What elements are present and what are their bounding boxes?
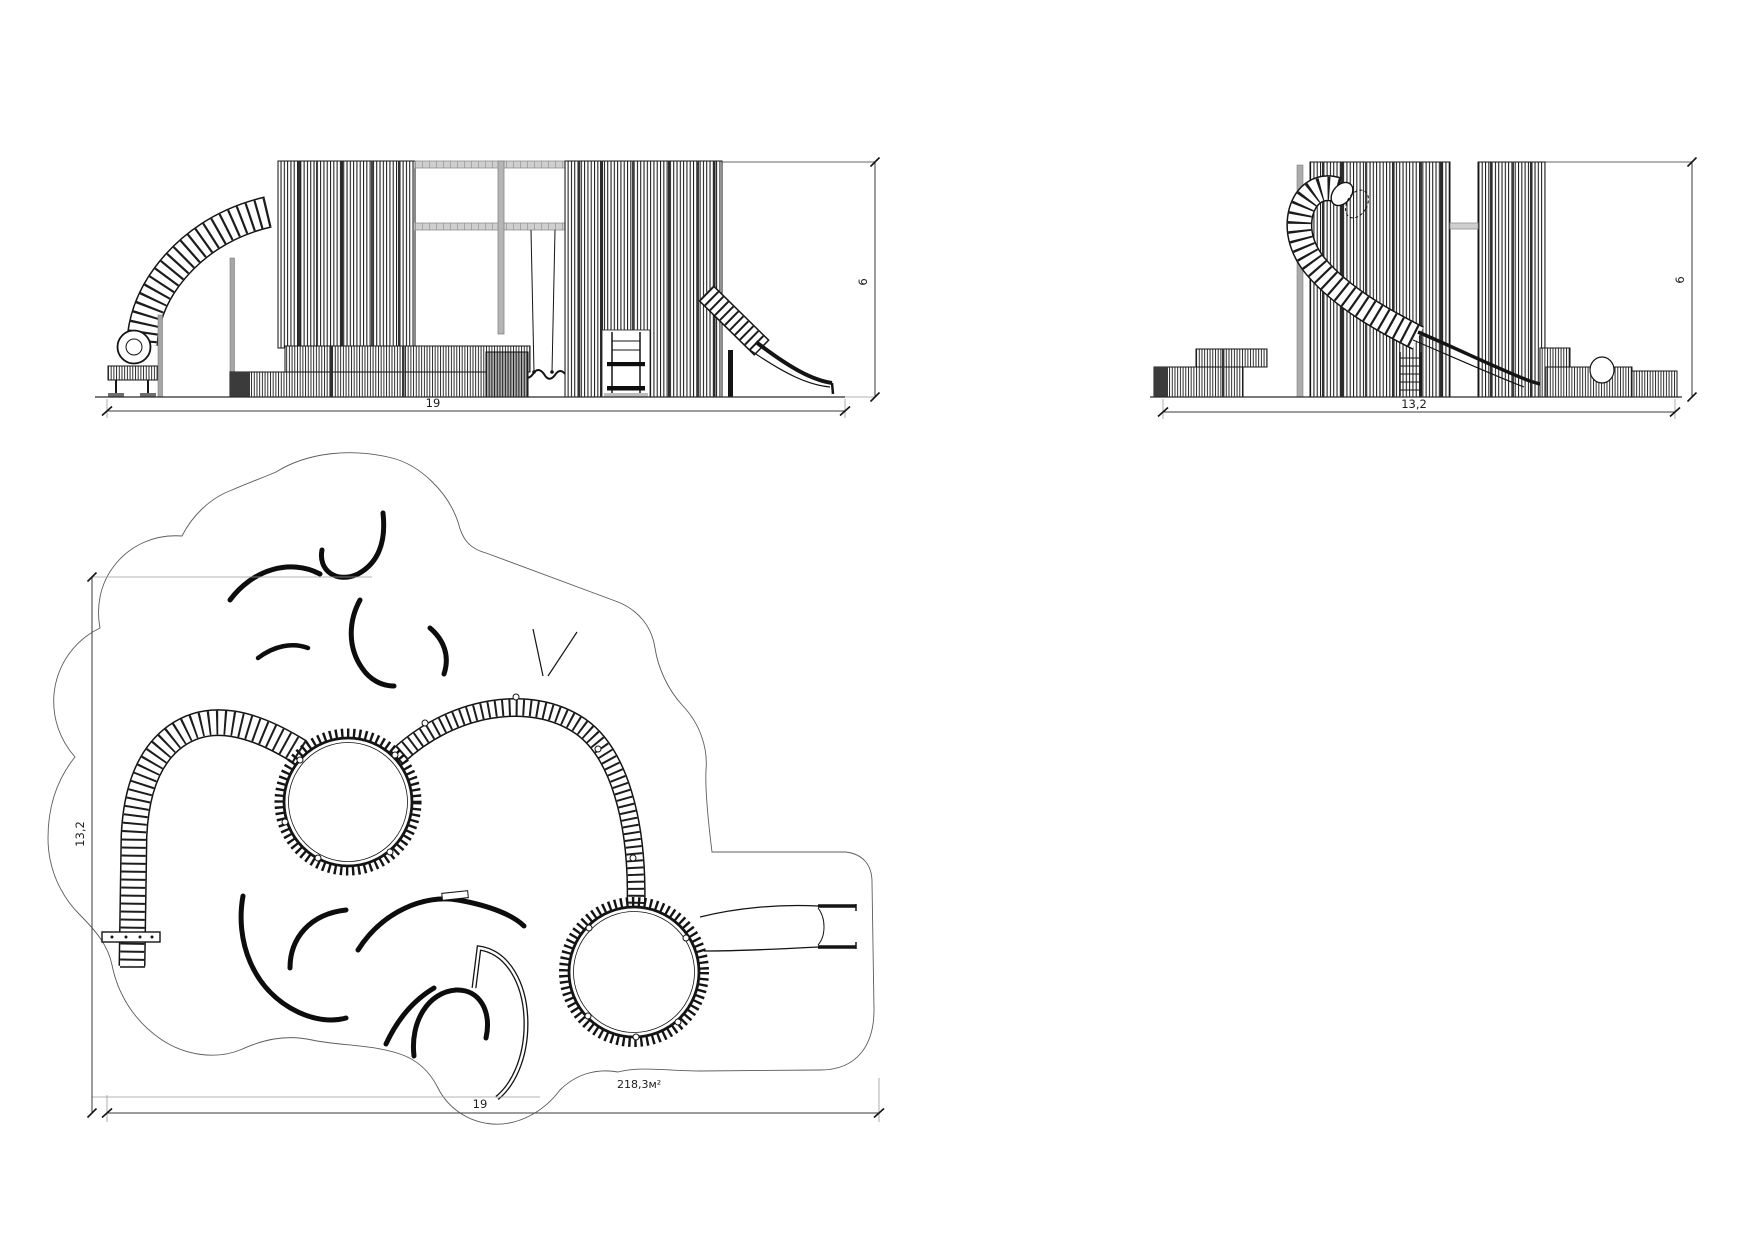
tube-slide-elevation [108,212,268,397]
front-width-dimension: 19 [102,396,850,418]
surface-boundary-outline [48,453,874,1124]
front-height-dimension: 6 [856,158,880,402]
tunnel-hole [1590,357,1614,383]
tube-slide-plan [102,723,300,967]
curved-edge-element [474,948,526,1098]
side-elevation-view: 13,2 6 [1150,158,1697,420]
plan-width-dimension-label: 19 [473,1097,488,1111]
straight-slide-elevation [706,293,833,397]
area-label: 218,3м² [617,1078,661,1091]
plan-view: 218,3м² 13,2 19 [48,453,884,1124]
side-height-dimension-label: 6 [1673,276,1687,283]
support-post [158,315,163,397]
mid-beam [415,223,565,230]
tower-circle-right-plan [564,902,705,1043]
plan-width-dimension: 19 [102,1078,884,1122]
technical-drawing-sheet: 19 6 [0,0,1753,1239]
tube-opening [118,331,151,364]
top-beam [415,161,565,168]
balance-beams-upper [230,513,446,686]
side-width-dimension: 13,2 [1158,397,1680,419]
tube-base [108,366,158,380]
slide-wedge-plan [533,629,577,676]
bridge-walkway-plan [396,694,636,905]
left-tower-elevation [278,161,415,348]
right-tower-elevation [565,161,722,397]
crawl-tunnel-plan [700,904,856,951]
plan-height-dimension-label: 13,2 [73,821,87,847]
front-height-dimension-label: 6 [856,278,870,285]
side-width-dimension-label: 13,2 [1401,397,1427,411]
side-height-dimension: 6 [1673,158,1697,402]
front-elevation-view: 19 6 [95,158,880,419]
drawing-canvas: 19 6 [0,0,1753,1239]
side-benches-left [1154,349,1267,397]
balance-beams-lower [241,896,524,1056]
tower-circle-left-plan [279,733,417,871]
frame-beams [415,161,565,334]
frame-post [498,161,504,334]
slide-post [728,350,733,397]
bench-platforms [230,346,530,397]
front-width-dimension-label: 19 [426,396,441,410]
side-benches-right [1540,348,1677,397]
